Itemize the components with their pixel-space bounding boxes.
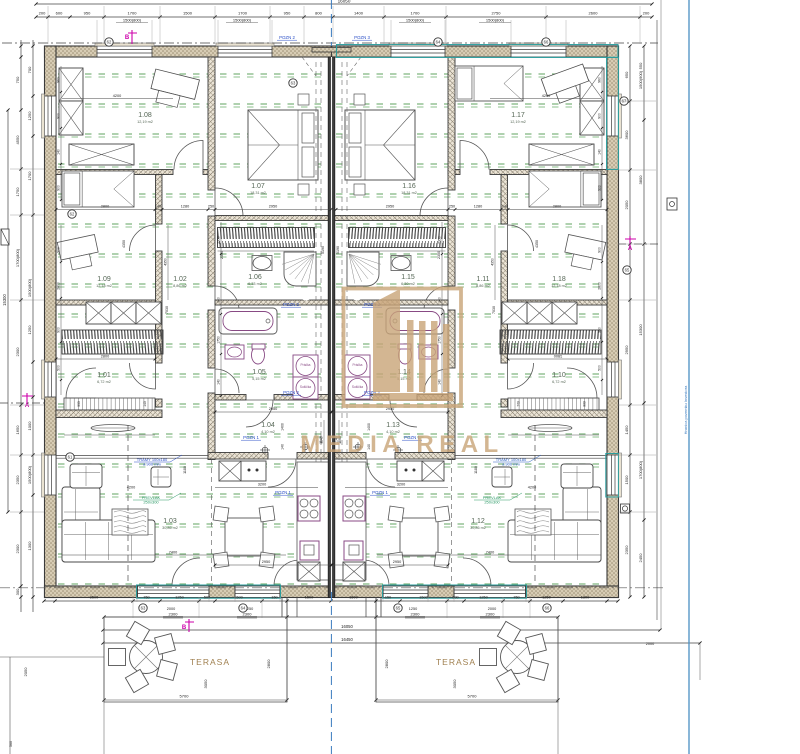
svg-text:4350: 4350 bbox=[535, 240, 539, 248]
svg-text:1300: 1300 bbox=[27, 541, 32, 551]
svg-text:7400: 7400 bbox=[169, 551, 177, 555]
svg-text:1700: 1700 bbox=[27, 171, 32, 181]
svg-text:500: 500 bbox=[452, 596, 458, 600]
svg-text:7030: 7030 bbox=[165, 306, 169, 314]
svg-text:2800: 2800 bbox=[101, 204, 109, 208]
svg-text:1500: 1500 bbox=[349, 596, 357, 600]
svg-text:15300: 15300 bbox=[638, 324, 643, 336]
svg-text:300: 300 bbox=[15, 588, 20, 595]
svg-text:1.15: 1.15 bbox=[401, 274, 415, 281]
svg-text:1.02: 1.02 bbox=[173, 276, 187, 283]
svg-text:5190: 5190 bbox=[321, 246, 325, 254]
svg-text:750: 750 bbox=[15, 76, 20, 83]
svg-text:62: 62 bbox=[107, 40, 112, 45]
svg-text:64: 64 bbox=[241, 606, 246, 611]
svg-text:550: 550 bbox=[638, 62, 643, 69]
svg-text:2300: 2300 bbox=[169, 612, 179, 617]
svg-text:1500: 1500 bbox=[234, 596, 242, 600]
svg-text:1250: 1250 bbox=[27, 111, 32, 121]
svg-text:750: 750 bbox=[513, 596, 519, 600]
svg-text:200: 200 bbox=[39, 11, 46, 16]
svg-text:1.06: 1.06 bbox=[248, 274, 262, 281]
svg-text:140: 140 bbox=[57, 149, 61, 155]
svg-text:900: 900 bbox=[598, 113, 602, 119]
svg-text:2800: 2800 bbox=[101, 354, 109, 358]
svg-text:18,31 m2: 18,31 m2 bbox=[250, 191, 266, 195]
svg-text:2050: 2050 bbox=[624, 200, 629, 210]
svg-text:16450: 16450 bbox=[341, 637, 353, 642]
svg-text:500: 500 bbox=[57, 365, 61, 371]
svg-text:900: 900 bbox=[57, 113, 61, 119]
svg-text:2300: 2300 bbox=[486, 612, 496, 617]
svg-text:2800: 2800 bbox=[384, 659, 389, 669]
svg-text:750: 750 bbox=[143, 596, 149, 600]
svg-text:3200: 3200 bbox=[397, 483, 405, 487]
svg-text:Práčka: Práčka bbox=[353, 363, 363, 367]
svg-text:1750: 1750 bbox=[15, 187, 20, 197]
svg-text:1500(800): 1500(800) bbox=[27, 465, 32, 484]
svg-text:Hranica pozemku Investora: Hranica pozemku Investora bbox=[683, 385, 688, 434]
svg-text:18,31 m2: 18,31 m2 bbox=[401, 191, 417, 195]
svg-text:4550: 4550 bbox=[15, 135, 20, 145]
svg-text:8,86 m2: 8,86 m2 bbox=[173, 284, 187, 288]
svg-text:2750: 2750 bbox=[492, 11, 502, 16]
svg-text:2300: 2300 bbox=[15, 544, 20, 554]
svg-text:5190: 5190 bbox=[336, 246, 340, 254]
svg-text:1.03: 1.03 bbox=[163, 518, 177, 525]
svg-text:600: 600 bbox=[56, 11, 63, 16]
svg-text:2050: 2050 bbox=[23, 667, 28, 677]
svg-text:65: 65 bbox=[396, 606, 401, 611]
svg-text:900: 900 bbox=[57, 185, 61, 191]
svg-text:1750: 1750 bbox=[438, 336, 442, 344]
svg-text:6,72 m2: 6,72 m2 bbox=[552, 380, 566, 384]
svg-text:1500: 1500 bbox=[183, 11, 193, 16]
svg-text:65: 65 bbox=[625, 268, 630, 273]
svg-text:2950: 2950 bbox=[262, 560, 270, 564]
svg-text:5700: 5700 bbox=[180, 694, 190, 699]
svg-text:1500(800): 1500(800) bbox=[123, 18, 142, 23]
svg-text:960: 960 bbox=[598, 77, 602, 83]
svg-text:150: 150 bbox=[271, 596, 277, 600]
svg-text:2950: 2950 bbox=[393, 560, 401, 564]
svg-text:140: 140 bbox=[155, 204, 161, 208]
svg-text:900: 900 bbox=[77, 401, 81, 407]
svg-text:4350: 4350 bbox=[122, 240, 126, 248]
svg-text:2500: 2500 bbox=[90, 596, 98, 600]
svg-text:2350: 2350 bbox=[217, 236, 221, 244]
svg-text:6,33 m2: 6,33 m2 bbox=[248, 282, 262, 286]
svg-text:900: 900 bbox=[57, 327, 61, 333]
svg-text:1.13: 1.13 bbox=[386, 422, 400, 429]
svg-text:2000: 2000 bbox=[167, 607, 175, 611]
svg-text:62: 62 bbox=[70, 212, 75, 217]
svg-text:1250: 1250 bbox=[409, 607, 417, 611]
svg-text:64: 64 bbox=[436, 40, 441, 45]
svg-text:3050: 3050 bbox=[452, 679, 457, 689]
svg-text:3200: 3200 bbox=[258, 483, 266, 487]
svg-text:1000: 1000 bbox=[27, 421, 32, 431]
svg-text:200: 200 bbox=[643, 11, 650, 16]
svg-text:12,18 m2: 12,18 m2 bbox=[551, 284, 567, 288]
svg-text:15300: 15300 bbox=[2, 294, 7, 306]
svg-text:66: 66 bbox=[544, 40, 549, 45]
svg-text:MEDIA REAL: MEDIA REAL bbox=[300, 431, 503, 458]
svg-text:1500(800): 1500(800) bbox=[27, 278, 32, 297]
svg-text:TERASA: TERASA bbox=[436, 657, 476, 667]
svg-text:2950: 2950 bbox=[269, 407, 277, 411]
svg-text:900: 900 bbox=[598, 247, 602, 253]
svg-text:1.10: 1.10 bbox=[552, 372, 566, 379]
svg-text:1.12: 1.12 bbox=[471, 518, 485, 525]
svg-text:2000: 2000 bbox=[488, 607, 496, 611]
svg-text:1250: 1250 bbox=[479, 596, 487, 600]
svg-text:2800: 2800 bbox=[57, 282, 61, 290]
svg-text:6,30 m2: 6,30 m2 bbox=[401, 282, 415, 286]
svg-text:4200: 4200 bbox=[113, 94, 121, 98]
svg-text:POZN 2: POZN 2 bbox=[283, 390, 299, 395]
svg-text:POZN 1: POZN 1 bbox=[275, 490, 291, 495]
svg-text:B: B bbox=[125, 35, 130, 41]
svg-text:7400: 7400 bbox=[486, 551, 494, 555]
svg-text:4350: 4350 bbox=[164, 258, 168, 266]
svg-text:Práčka: Práčka bbox=[301, 363, 311, 367]
svg-text:1180: 1180 bbox=[474, 466, 478, 474]
svg-text:1400: 1400 bbox=[367, 423, 371, 431]
svg-text:1.08: 1.08 bbox=[138, 112, 152, 119]
svg-text:1700: 1700 bbox=[238, 11, 248, 16]
svg-text:1400: 1400 bbox=[281, 423, 285, 431]
svg-text:650: 650 bbox=[624, 71, 629, 78]
svg-text:800: 800 bbox=[315, 11, 322, 16]
svg-text:66: 66 bbox=[545, 606, 550, 611]
svg-text:140: 140 bbox=[217, 297, 221, 303]
svg-text:4200: 4200 bbox=[542, 94, 550, 98]
svg-text:2350: 2350 bbox=[15, 475, 20, 485]
svg-text:1450: 1450 bbox=[624, 425, 629, 435]
svg-text:950: 950 bbox=[284, 11, 291, 16]
svg-text:5700: 5700 bbox=[468, 694, 478, 699]
svg-text:2350: 2350 bbox=[438, 236, 442, 244]
svg-text:1.04: 1.04 bbox=[261, 422, 275, 429]
svg-text:1.16: 1.16 bbox=[402, 183, 416, 190]
svg-text:1750: 1750 bbox=[217, 336, 221, 344]
svg-text:30,86 m2: 30,86 m2 bbox=[470, 526, 486, 530]
svg-text:12,19 m2: 12,19 m2 bbox=[137, 120, 153, 124]
svg-text:140: 140 bbox=[438, 379, 442, 385]
svg-text:1.05: 1.05 bbox=[252, 369, 266, 376]
svg-text:1500(800): 1500(800) bbox=[233, 18, 252, 23]
svg-text:1.07: 1.07 bbox=[251, 183, 265, 190]
svg-text:POZN 3: POZN 3 bbox=[354, 35, 370, 40]
svg-text:1500: 1500 bbox=[419, 596, 427, 600]
svg-text:2450: 2450 bbox=[638, 553, 643, 563]
svg-text:30,86 m2: 30,86 m2 bbox=[162, 526, 178, 530]
svg-text:1.18: 1.18 bbox=[552, 276, 566, 283]
svg-text:63: 63 bbox=[291, 81, 296, 86]
svg-text:12,19 m2: 12,19 m2 bbox=[510, 120, 526, 124]
svg-text:1280: 1280 bbox=[181, 204, 189, 208]
svg-text:2300: 2300 bbox=[411, 612, 421, 617]
svg-text:3050: 3050 bbox=[203, 679, 208, 689]
svg-text:16050: 16050 bbox=[338, 0, 351, 4]
svg-text:2600: 2600 bbox=[589, 11, 599, 16]
svg-text:2800: 2800 bbox=[553, 204, 561, 208]
svg-text:1.17: 1.17 bbox=[511, 112, 525, 119]
svg-text:4350: 4350 bbox=[491, 258, 495, 266]
svg-text:900: 900 bbox=[57, 247, 61, 253]
svg-text:140: 140 bbox=[281, 444, 285, 450]
svg-text:1.11: 1.11 bbox=[476, 276, 489, 283]
svg-text:1500(900): 1500(900) bbox=[638, 70, 643, 89]
svg-text:16050: 16050 bbox=[341, 624, 353, 629]
svg-text:1500: 1500 bbox=[305, 596, 313, 600]
svg-text:250: 250 bbox=[449, 204, 455, 208]
svg-text:150: 150 bbox=[385, 596, 391, 600]
svg-text:1700: 1700 bbox=[411, 11, 421, 16]
svg-text:140: 140 bbox=[143, 401, 147, 407]
svg-text:1400: 1400 bbox=[354, 11, 364, 16]
svg-text:1700(800): 1700(800) bbox=[15, 248, 20, 267]
svg-text:1650: 1650 bbox=[15, 425, 20, 435]
svg-text:3600: 3600 bbox=[624, 130, 629, 140]
svg-text:Sušička: Sušička bbox=[352, 385, 363, 389]
svg-text:POZN 2: POZN 2 bbox=[279, 35, 295, 40]
svg-text:B: B bbox=[182, 625, 187, 631]
svg-text:900: 900 bbox=[598, 185, 602, 191]
svg-text:POZN 1: POZN 1 bbox=[243, 435, 259, 440]
svg-text:500: 500 bbox=[598, 365, 602, 371]
svg-text:1250: 1250 bbox=[542, 596, 550, 600]
svg-text:2350: 2350 bbox=[437, 251, 441, 259]
svg-text:1180: 1180 bbox=[183, 466, 187, 474]
svg-text:2350: 2350 bbox=[624, 545, 629, 555]
svg-text:140: 140 bbox=[217, 379, 221, 385]
svg-text:5,15 m2: 5,15 m2 bbox=[252, 377, 266, 381]
svg-text:1500(800): 1500(800) bbox=[486, 18, 505, 23]
svg-text:1500: 1500 bbox=[624, 475, 629, 485]
svg-text:7030: 7030 bbox=[492, 306, 496, 314]
svg-text:2950: 2950 bbox=[269, 204, 277, 208]
svg-text:POZN 2: POZN 2 bbox=[283, 302, 299, 307]
svg-text:960: 960 bbox=[57, 77, 61, 83]
svg-text:250: 250 bbox=[208, 204, 214, 208]
svg-text:1500(800): 1500(800) bbox=[406, 18, 425, 23]
svg-text:1250: 1250 bbox=[175, 596, 183, 600]
svg-text:1700(800): 1700(800) bbox=[638, 460, 643, 479]
svg-text:4,10 m2: 4,10 m2 bbox=[261, 430, 275, 434]
svg-text:2300: 2300 bbox=[15, 347, 20, 357]
svg-text:700: 700 bbox=[27, 66, 32, 73]
svg-text:900: 900 bbox=[598, 327, 602, 333]
svg-text:1.09: 1.09 bbox=[97, 276, 111, 283]
svg-text:63: 63 bbox=[141, 606, 146, 611]
svg-text:2950: 2950 bbox=[386, 204, 394, 208]
svg-text:2000: 2000 bbox=[646, 642, 654, 646]
svg-text:950: 950 bbox=[84, 11, 91, 16]
svg-text:140: 140 bbox=[598, 149, 602, 155]
svg-text:2800: 2800 bbox=[598, 282, 602, 290]
svg-text:140: 140 bbox=[438, 297, 442, 303]
svg-text:1700: 1700 bbox=[128, 11, 138, 16]
svg-text:12,18 m2: 12,18 m2 bbox=[96, 284, 112, 288]
svg-text:2800: 2800 bbox=[266, 659, 271, 669]
svg-text:1280: 1280 bbox=[474, 204, 482, 208]
svg-text:POZN 1: POZN 1 bbox=[372, 490, 388, 495]
svg-text:2950: 2950 bbox=[624, 345, 629, 355]
svg-text:TERASA: TERASA bbox=[190, 657, 230, 667]
svg-text:8,86 m2: 8,86 m2 bbox=[476, 284, 490, 288]
svg-text:560: 560 bbox=[9, 741, 13, 747]
svg-text:1.01: 1.01 bbox=[97, 372, 111, 379]
svg-text:61: 61 bbox=[68, 455, 73, 460]
svg-text:3800: 3800 bbox=[638, 175, 643, 185]
svg-text:140: 140 bbox=[502, 204, 508, 208]
svg-text:1250: 1250 bbox=[27, 325, 32, 335]
svg-text:1300: 1300 bbox=[581, 596, 589, 600]
svg-text:Sušička: Sušička bbox=[300, 385, 311, 389]
svg-text:6,72 m2: 6,72 m2 bbox=[97, 380, 111, 384]
